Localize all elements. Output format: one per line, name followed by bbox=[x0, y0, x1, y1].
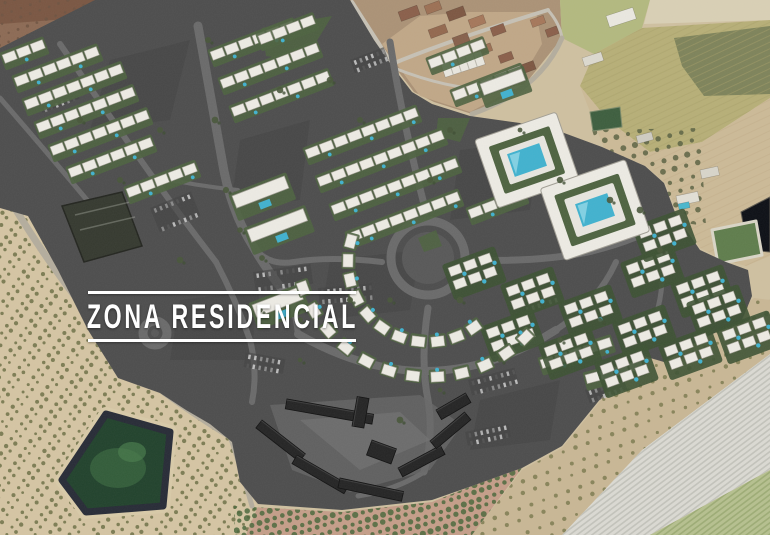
masterplan-image: ZONA RESIDENCIAL bbox=[0, 0, 770, 535]
aerial-scene bbox=[0, 0, 770, 535]
photo-grain bbox=[0, 0, 770, 535]
grain bbox=[0, 0, 770, 535]
